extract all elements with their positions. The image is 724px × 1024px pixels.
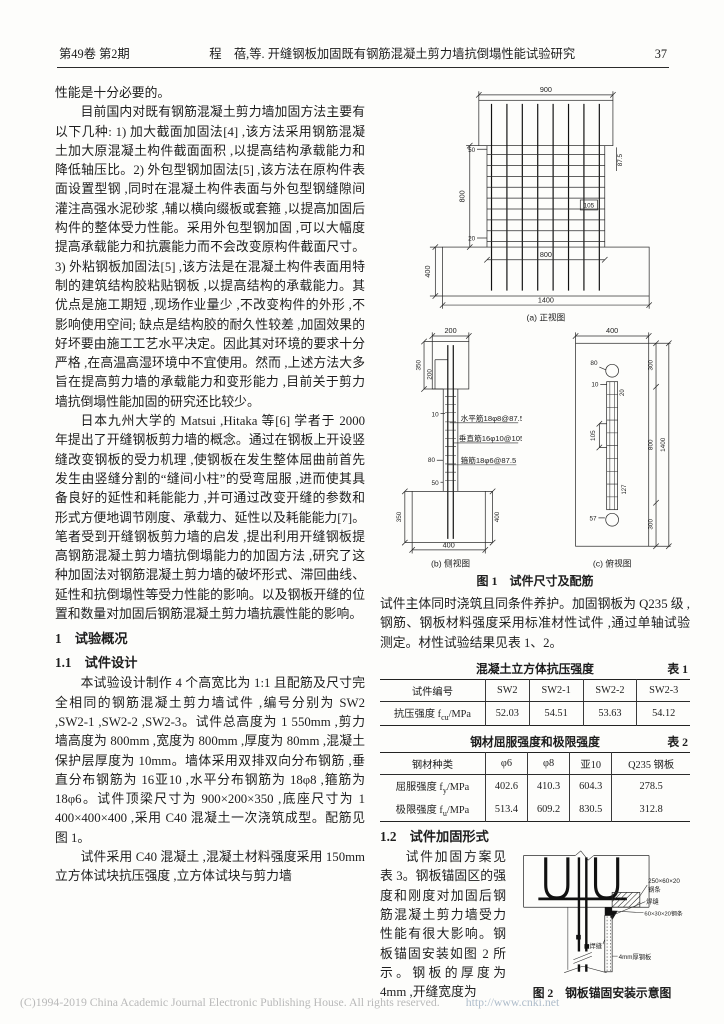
dim-200-inner: 200 <box>426 369 433 380</box>
table-2-title: 钢材屈服强度和极限强度 <box>470 735 600 749</box>
figure-2-anchorage-diagram: 250×60×20 钢条 焊缝 60×30×20钢条 焊缝 4mm厚钢板 <box>514 850 690 981</box>
subfig-a-caption: (a) 正视图 <box>527 311 566 322</box>
dim-400-top: 400 <box>606 326 618 335</box>
cell: 53.63 <box>583 701 637 725</box>
header-cell: SW2-1 <box>529 679 583 701</box>
cnki-url: http://www.cnki.net <box>466 995 560 1009</box>
label-horizontal-rebar: 水平筋18φ8@87.5 <box>461 413 522 423</box>
table-1-concrete-strength: 试件编号 SW2 SW2-1 SW2-2 SW2-3 抗压强度 fcu/MPa … <box>380 679 690 726</box>
copyright-text: (C)1994-2019 China Academic Journal Elec… <box>20 995 440 1009</box>
header-cell: φ8 <box>528 752 570 774</box>
cell: 402.6 <box>485 774 527 798</box>
journal-page: 第49卷 第2期 程 蓓,等. 开缝钢板加固既有钢筋混凝土剪力墙抗倒塌性能试验研… <box>0 0 724 1024</box>
right-column: 900 50 87.5 800 105 20 400 800 1400 (a) … <box>380 84 690 1002</box>
left-column: 性能是十分必要的。 目前国内对既有钢筋混凝土剪力墙加固方法主要有以下几种: 1)… <box>55 84 365 1002</box>
dim-50: 50 <box>432 480 440 487</box>
figure-1a-front-view: 900 50 87.5 800 105 20 400 800 1400 (a) … <box>399 84 671 325</box>
header-cell: SW2-3 <box>637 679 690 701</box>
label-steel-plate: 4mm厚钢板 <box>619 952 652 961</box>
cell: 830.5 <box>570 798 612 822</box>
figure-1-caption: 图 1 试件尺寸及配筋 <box>380 572 690 589</box>
header-cell: Q235 钢板 <box>612 752 690 774</box>
label-vertical-rebar: 垂直筋16φ10@105 <box>459 433 522 443</box>
dim-10: 10 <box>432 411 440 418</box>
cell: 54.12 <box>637 701 690 725</box>
header-cell: 亚10 <box>570 752 612 774</box>
table-2-steel-strength: 钢材种类 φ6 φ8 亚10 Q235 钢板 屈服强度 fy/MPa 402.6… <box>380 752 690 822</box>
paragraph-slit-plate-concept: 日本九州大学的 Matsui ,Hitaka 等[6] 学者于 2000 年提出… <box>55 412 365 624</box>
table-2-title-row: 钢材屈服强度和极限强度 表 2 <box>380 733 690 750</box>
dim-1400: 1400 <box>660 437 667 452</box>
table-1-tag: 表 1 <box>667 660 688 677</box>
section-heading-1-2: 1.2 试件加固形式 <box>380 827 690 846</box>
dim-200-top: 200 <box>444 326 456 335</box>
figure-1: 900 50 87.5 800 105 20 400 800 1400 (a) … <box>380 84 690 589</box>
cell: 604.3 <box>570 774 612 798</box>
dim-1400: 1400 <box>538 295 554 304</box>
paragraph-specimen-design: 本试验设计制作 4 个高宽比为 1:1 且配筋及尺寸完全相同的钢筋混凝土剪力墙试… <box>55 674 365 848</box>
paragraph-continuation: 性能是十分必要的。 <box>55 84 365 103</box>
row-label-cell: 屈服强度 fy/MPa <box>380 774 485 798</box>
dim-300-top: 300 <box>647 359 654 370</box>
header-cell: SW2-2 <box>583 679 637 701</box>
dim-300-bottom: 300 <box>647 519 654 530</box>
paragraph-concrete-material: 试件采用 C40 混凝土 ,混凝土材料强度采用 150mm 立方体试块抗压强度 … <box>55 848 365 887</box>
cell: 609.2 <box>528 798 570 822</box>
table-row: 试件编号 SW2 SW2-1 SW2-2 SW2-3 <box>380 679 690 701</box>
section-heading-1-1: 1.1 试件设计 <box>55 653 365 672</box>
dim-800-bottom: 800 <box>540 250 552 259</box>
table-row: 抗压强度 fcu/MPa 52.03 54.51 53.63 54.12 <box>380 701 690 725</box>
cell: 513.4 <box>485 798 527 822</box>
cell: 410.3 <box>528 774 570 798</box>
dim-80: 80 <box>428 457 436 464</box>
dim-800-left: 800 <box>457 190 466 202</box>
header-cell: 试件编号 <box>380 679 485 701</box>
volume-issue: 第49卷 第2期 <box>59 44 130 62</box>
dim-105: 105 <box>590 430 597 441</box>
label-steel-strip-2: 60×30×20钢条 <box>644 910 682 918</box>
strengthening-scheme-block: 250×60×20 钢条 焊缝 60×30×20钢条 焊缝 4mm厚钢板 图 2… <box>380 848 690 1002</box>
header-cell: φ6 <box>485 752 527 774</box>
dim-400-bottom: 400 <box>443 541 455 550</box>
label-weld-left: 焊缝 <box>589 941 602 950</box>
row-label-cell: 极限强度 fu/MPa <box>380 798 485 822</box>
subfig-c-caption: (c) 俯视图 <box>593 557 632 568</box>
cell: 278.5 <box>612 774 690 798</box>
header-rule <box>57 67 669 68</box>
table-1-title: 混凝土立方体抗压强度 <box>476 662 594 676</box>
dim-105: 105 <box>584 203 595 210</box>
dim-350-bottom: 350 <box>396 511 403 522</box>
dim-400-right: 400 <box>494 511 501 522</box>
figure-1c-plan-view: 400 80 10 20 105 127 57 300 800 300 1400… <box>548 325 690 570</box>
cell: 312.8 <box>612 798 690 822</box>
dim-20: 20 <box>620 389 626 396</box>
table-1-title-row: 混凝土立方体抗压强度 表 1 <box>380 660 690 677</box>
figure-2: 250×60×20 钢条 焊缝 60×30×20钢条 焊缝 4mm厚钢板 图 2… <box>514 850 690 1001</box>
label-steel-strip-1-name: 钢条 <box>648 885 661 894</box>
dim-50: 50 <box>468 147 476 154</box>
table-row: 屈服强度 fy/MPa 402.6 410.3 604.3 278.5 <box>380 774 690 798</box>
dim-20: 20 <box>468 236 476 243</box>
dim-400-left: 400 <box>423 266 432 278</box>
copyright-footer: (C)1994-2019 China Academic Journal Elec… <box>20 995 708 1010</box>
two-column-body: 性能是十分必要的。 目前国内对既有钢筋混凝土剪力墙加固方法主要有以下几种: 1)… <box>55 84 690 1002</box>
dim-57: 57 <box>590 516 598 523</box>
dim-350-top: 350 <box>415 359 422 370</box>
header-cell: 钢材种类 <box>380 752 485 774</box>
table-2-tag: 表 2 <box>667 733 688 750</box>
dim-80: 80 <box>590 360 598 367</box>
label-stirrup: 箍筋18φ6@87.5 <box>461 455 517 465</box>
paragraph-curing-materials: 试件主体同时浇筑且同条件养护。加固钢板为 Q235 级 ,钢筋、钢板材料强度采用… <box>380 595 690 653</box>
section-heading-1: 1 试验概况 <box>55 629 365 648</box>
paragraph-strengthening-methods: 目前国内对既有钢筋混凝土剪力墙加固方法主要有以下几种: 1) 加大截面加固法[4… <box>55 103 365 412</box>
dim-10: 10 <box>591 381 599 388</box>
header-cell: SW2 <box>485 679 529 701</box>
dim-127: 127 <box>622 485 628 495</box>
label-weld-right: 焊缝 <box>646 897 659 906</box>
figure-1-bc-row: 200 350 200 10 水平筋18φ8@87.5 垂直筋16φ10@105… <box>380 325 690 570</box>
figure-1b-side-view: 200 350 200 10 水平筋18φ8@87.5 垂直筋16φ10@105… <box>380 325 522 570</box>
table-row: 钢材种类 φ6 φ8 亚10 Q235 钢板 <box>380 752 690 774</box>
row-label-cell: 抗压强度 fcu/MPa <box>380 701 485 725</box>
dim-800: 800 <box>647 439 654 450</box>
running-title: 程 蓓,等. 开缝钢板加固既有钢筋混凝土剪力墙抗倒塌性能试验研究 <box>130 44 655 62</box>
cell: 52.03 <box>485 701 529 725</box>
subfig-b-caption: (b) 侧视图 <box>431 557 470 568</box>
page-number: 37 <box>655 47 667 62</box>
cell: 54.51 <box>529 701 583 725</box>
table-row: 极限强度 fu/MPa 513.4 609.2 830.5 312.8 <box>380 798 690 822</box>
label-steel-strip-1-size: 250×60×20 <box>648 878 680 885</box>
page-header: 第49卷 第2期 程 蓓,等. 开缝钢板加固既有钢筋混凝土剪力墙抗倒塌性能试验研… <box>59 44 667 62</box>
dim-900: 900 <box>540 85 552 94</box>
dim-87-5: 87.5 <box>617 153 624 166</box>
